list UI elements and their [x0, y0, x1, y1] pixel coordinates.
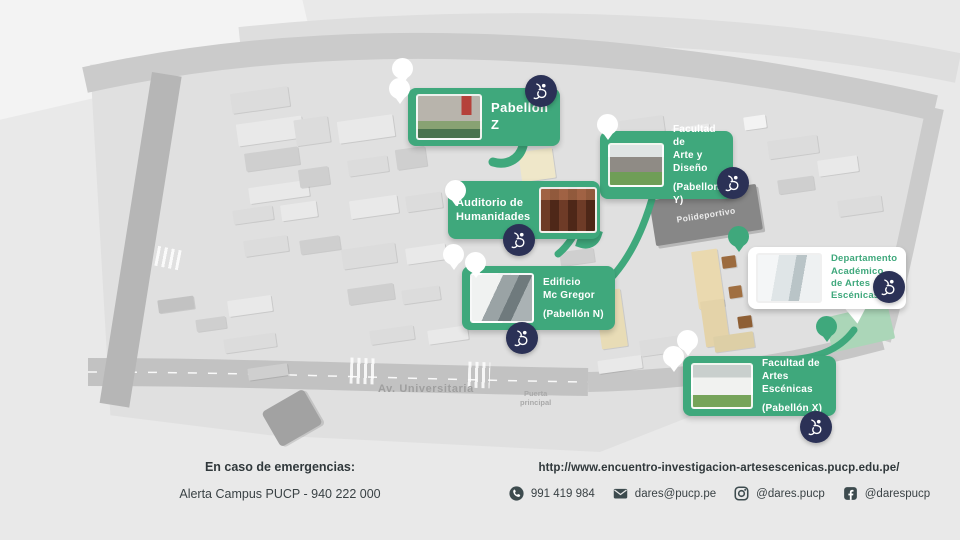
dance-logo-icon [873, 271, 905, 303]
dance-logo-icon [800, 411, 832, 443]
map-pin [663, 346, 684, 367]
map-pin [445, 180, 466, 201]
photo-pabellon-z [416, 94, 482, 140]
instagram-icon [733, 485, 750, 502]
callout-edificio-mc-gregor: Edificio Mc Gregor (Pabellón N) [462, 266, 615, 330]
contact-whatsapp[interactable]: 991 419 984 [508, 485, 595, 502]
callout-line: Facultad de [762, 357, 828, 370]
map-pin [443, 244, 464, 265]
photo-facultad-arte-diseno [608, 143, 664, 187]
contact-label: 991 419 984 [531, 488, 595, 500]
map-building [518, 148, 556, 182]
whatsapp-icon [508, 485, 525, 502]
website-link[interactable]: http://www.encuentro-investigacion-artes… [488, 462, 950, 474]
map-building [293, 116, 330, 146]
facebook-icon [842, 485, 859, 502]
polideportivo-label: Polideportivo [676, 205, 736, 224]
contact-block: http://www.encuentro-investigacion-artes… [488, 462, 950, 502]
callout-line: (Pabellón N) [543, 308, 604, 321]
contact-label: @darespucp [865, 488, 930, 500]
map-building [737, 315, 753, 329]
contact-email[interactable]: dares@pucp.pe [612, 485, 716, 502]
contact-instagram[interactable]: @dares.pucp [733, 485, 825, 502]
callout-facultad-arte-diseno: Facultad de Arte y Diseño (Pabellon Y) [600, 131, 733, 199]
contact-facebook[interactable]: @darespucp [842, 485, 930, 502]
dance-logo-icon [503, 224, 535, 256]
photo-facultad-artes-escenicas [691, 363, 753, 409]
crosswalk [350, 358, 377, 385]
map-pin [597, 114, 618, 135]
contact-label: @dares.pucp [756, 488, 825, 500]
main-gate-label: Puerta principal [520, 389, 551, 408]
dance-logo-icon [525, 75, 557, 107]
callout-line: Facultad de [673, 123, 725, 149]
callout-line: Departamento [831, 253, 897, 265]
dance-logo-icon [717, 167, 749, 199]
callout-line: Humanidades [456, 210, 530, 224]
photo-auditorio-humanidades [539, 187, 597, 233]
callout-line: Artes Escénicas [762, 370, 828, 396]
map-building [728, 285, 743, 299]
map-pin [465, 252, 486, 273]
gate-line2: principal [520, 398, 551, 407]
callout-line: Mc Gregor [543, 289, 604, 302]
callout-line: Arte y Diseño [673, 149, 725, 175]
map-pin [392, 58, 413, 79]
map-pin [816, 316, 837, 337]
avenue-label: Av. Universitaria [378, 383, 474, 395]
gate-line1: Puerta [520, 389, 551, 398]
callout-line: Auditorio de [456, 196, 530, 210]
email-icon [612, 485, 629, 502]
map-pin [389, 78, 410, 99]
callout-facultad-artes-escenicas: Facultad de Artes Escénicas (Pabellón X) [683, 356, 836, 416]
map-building [395, 146, 427, 170]
map-pin [728, 226, 749, 247]
emergency-title: En caso de emergencias: [110, 460, 450, 474]
campus-map-slide: Polideportivo Av. Universitaria Puerta p… [0, 0, 960, 540]
callout-line: Edificio [543, 276, 604, 289]
emergency-block: En caso de emergencias: Alerta Campus PU… [110, 460, 450, 501]
contact-label: dares@pucp.pe [635, 488, 716, 500]
emergency-number: Alerta Campus PUCP - 940 222 000 [110, 487, 450, 501]
dance-logo-icon [506, 322, 538, 354]
crosswalk [154, 246, 181, 270]
photo-departamento-artes-escenicas [756, 253, 822, 303]
